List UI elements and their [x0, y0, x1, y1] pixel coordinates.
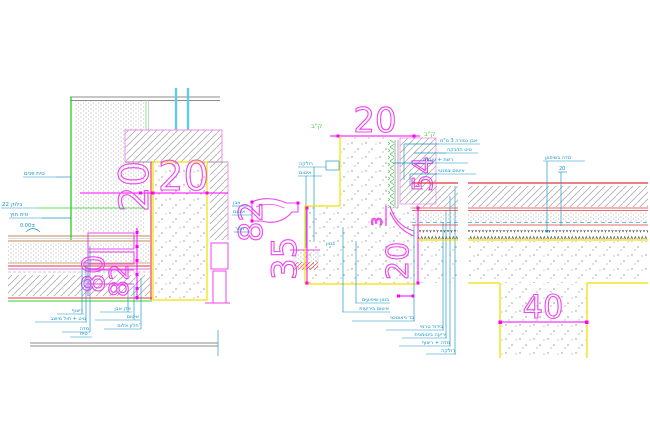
dim-20-horizontal: 20 [158, 154, 209, 200]
label-screed-slope: מדה בשיפוע [545, 155, 571, 161]
label-stack-3: בד גיאוטכני [390, 315, 414, 321]
label-sill-1: אדן אבן [114, 306, 131, 312]
label-left-2: איטום [233, 209, 245, 215]
layer-insulation-wave [468, 230, 648, 239]
label-left-3: תפר [235, 226, 244, 232]
label-stack-1: בטון שיפועים [362, 297, 389, 303]
layer-concrete [468, 241, 648, 283]
dim-20-right-rotated: 20 [381, 242, 416, 280]
label-concrete: בטון [326, 241, 335, 247]
layer-dots [412, 212, 458, 222]
label-stack-7: רולקה [441, 348, 455, 354]
label-floor-2: טיט + חול מיוצב [50, 316, 86, 322]
dim-40: 40 [523, 288, 564, 326]
dim-20-vertical: 20 [112, 161, 158, 212]
leader-dot [546, 230, 548, 232]
layer-screed-hatch [412, 186, 458, 207]
parapet-concrete [341, 137, 388, 207]
label-20-small: 20 [559, 166, 565, 172]
dim-tick [136, 273, 139, 276]
dim-tick [337, 135, 340, 138]
label-stack-5: יריעה ביטומנית [415, 332, 446, 338]
dim-tick [251, 220, 254, 223]
label-left-1: אבן [233, 200, 241, 206]
dim-tick [136, 287, 139, 290]
dim-tick [136, 231, 139, 234]
label-sill-2: איטום [127, 314, 139, 320]
insulation-strip [388, 140, 394, 208]
label-sill-3: חלון אלומ' [117, 323, 140, 329]
label-right-4: איטום צמנטי [438, 168, 465, 174]
label-right-2: טיט הדבקה [447, 147, 472, 153]
dim-tick [585, 321, 589, 325]
label-stack-2: איטום ביריעות [359, 306, 389, 312]
dim-tick [306, 282, 309, 285]
left-detail: 20 20 80 82 [1, 88, 230, 356]
jamb-hatch [210, 162, 228, 240]
dim-tick [297, 202, 300, 205]
dim-tick [136, 296, 139, 299]
dim-tick [306, 207, 309, 210]
level-arc-symbol [26, 229, 40, 233]
dim-35-rotated: 35 [265, 237, 305, 280]
middle-detail: 20 54 ק"ב ק"ב רולקה איטום 82 [232, 101, 480, 354]
label-stack-6: מדה + ריצוף [422, 340, 450, 346]
cad-drawing-page: 20 20 80 82 [0, 0, 650, 436]
label-block: בלוק 22 [2, 201, 22, 208]
layer-insulation-wave [418, 230, 458, 239]
green-mark-1: ק"ב [311, 122, 323, 130]
dim-tick [136, 245, 139, 248]
layer-concrete [418, 241, 458, 283]
label-plaster-out: טיח חוץ [10, 212, 29, 218]
dim-tick [251, 201, 254, 204]
dim-tick [136, 259, 139, 262]
label-right-1: אבן נסורה 3 ס"מ [440, 138, 477, 144]
dim-tick [499, 321, 503, 325]
label-top-1: רולקה [299, 161, 313, 167]
green-mark-2: ק"ב [424, 130, 436, 138]
dim-3-rotated: 3 [370, 217, 386, 226]
detail-ref-box [326, 161, 339, 170]
label-floor-1: ריצוף [72, 308, 84, 314]
label-right-3: רשת + עוגנים [423, 157, 453, 163]
label-top-2: איטום [299, 170, 311, 176]
dim-82-vertical: 82 [105, 264, 135, 297]
label-bottom: טיח [80, 331, 88, 337]
layer-screed-hatch [468, 186, 648, 207]
label-plaster-in: טיח פנים [24, 171, 45, 177]
dim-tick [397, 295, 400, 298]
frame-part-2 [213, 271, 226, 303]
layer-dots [468, 212, 648, 222]
label-stack-4: בידוד טרמי [420, 324, 443, 330]
dim-20-top: 20 [353, 101, 396, 141]
roof-layers [412, 183, 648, 283]
dim-tick [413, 135, 416, 138]
cad-canvas: 20 20 80 82 [0, 0, 650, 436]
frame-part-1 [211, 243, 228, 269]
label-level: 0.00± [20, 223, 35, 229]
